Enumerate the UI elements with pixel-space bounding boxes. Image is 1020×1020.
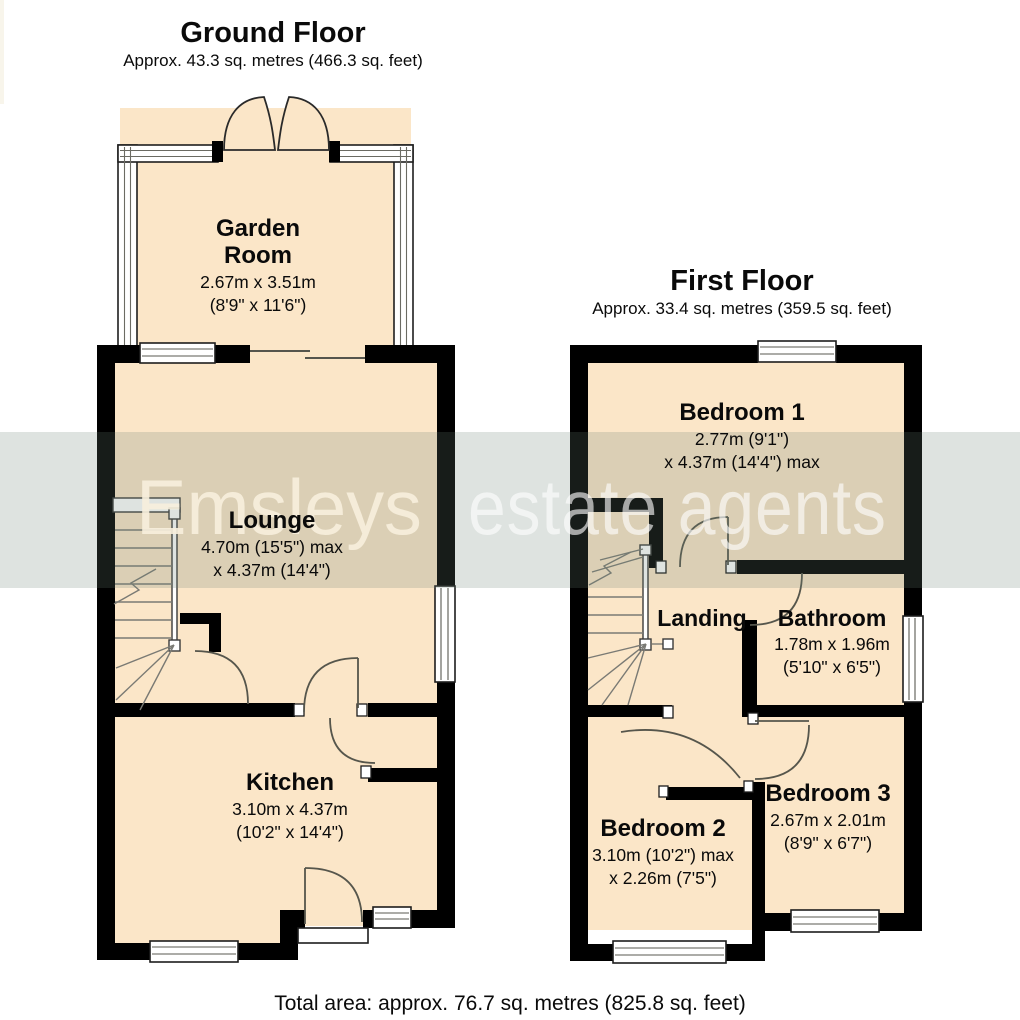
lounge-name: Lounge: [172, 508, 372, 535]
bathroom-label: Bathroom 1.78m x 1.96m (5'10" x 6'5"): [757, 606, 907, 679]
bedroom2-dim-imperial: x 2.26m (7'5"): [563, 867, 763, 890]
garden-room-name: Garden Room: [188, 216, 328, 270]
bedroom1-label: Bedroom 1 2.77m (9'1") x 4.37m (14'4") m…: [632, 400, 852, 474]
first-floor-header: First Floor Approx. 33.4 sq. metres (359…: [542, 266, 942, 319]
garden-room-dim-imperial: (8'9" x 11'6"): [188, 294, 328, 317]
kitchen-dim-metric: 3.10m x 4.37m: [190, 798, 390, 821]
floorplan-page: Emsleys estate agents Ground Floor Appro…: [0, 0, 1020, 1020]
bathroom-dim-imperial: (5'10" x 6'5"): [757, 656, 907, 679]
floorplan-drawing: [0, 0, 1020, 1020]
bedroom1-dim-metric: 2.77m (9'1"): [632, 428, 852, 451]
bathroom-dim-metric: 1.78m x 1.96m: [757, 633, 907, 656]
bedroom1-name: Bedroom 1: [632, 400, 852, 427]
garden-room-dim-metric: 2.67m x 3.51m: [188, 271, 328, 294]
bedroom1-dim-imperial: x 4.37m (14'4") max: [632, 451, 852, 474]
landing-name: Landing: [646, 606, 758, 632]
kitchen-door-threshold: [298, 928, 368, 943]
lounge-label: Lounge 4.70m (15'5") max x 4.37m (14'4"): [172, 508, 372, 582]
total-area-text: Total area: approx. 76.7 sq. metres (825…: [110, 992, 910, 1016]
first-floor-area: Approx. 33.4 sq. metres (359.5 sq. feet): [542, 299, 942, 319]
lounge-dim-metric: 4.70m (15'5") max: [172, 536, 372, 559]
lounge-dim-imperial: x 4.37m (14'4"): [172, 559, 372, 582]
kitchen-label: Kitchen 3.10m x 4.37m (10'2" x 14'4"): [190, 770, 390, 844]
bedroom3-dim-imperial: (8'9" x 6'7"): [728, 832, 928, 855]
garden-room-label: Garden Room 2.67m x 3.51m (8'9" x 11'6"): [188, 216, 328, 317]
kitchen-dim-imperial: (10'2" x 14'4"): [190, 821, 390, 844]
bathroom-name: Bathroom: [757, 606, 907, 632]
ground-floor-area: Approx. 43.3 sq. metres (466.3 sq. feet): [73, 51, 473, 71]
ground-floor-title: Ground Floor: [73, 18, 473, 48]
bedroom3-dim-metric: 2.67m x 2.01m: [728, 809, 928, 832]
first-floor-bottom-notch: [765, 931, 922, 963]
landing-label: Landing: [646, 606, 758, 632]
kitchen-name: Kitchen: [190, 770, 390, 797]
watermark-separator: [0, 0, 4, 104]
ground-floor-header: Ground Floor Approx. 43.3 sq. metres (46…: [73, 18, 473, 71]
bedroom3-name: Bedroom 3: [728, 781, 928, 808]
bedroom3-label: Bedroom 3 2.67m x 2.01m (8'9" x 6'7"): [728, 781, 928, 855]
first-floor-title: First Floor: [542, 266, 942, 296]
